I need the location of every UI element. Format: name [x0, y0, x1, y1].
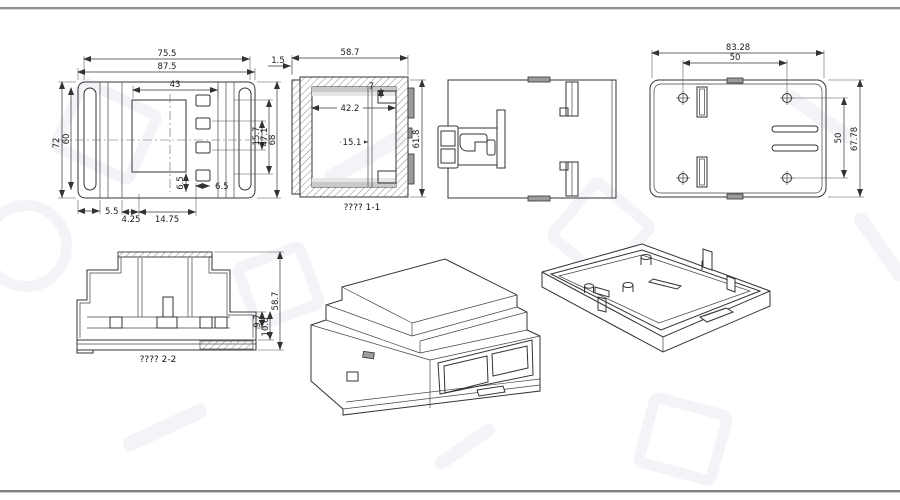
section2-foot: [77, 350, 93, 353]
dim-front-right-outer: 68: [268, 135, 278, 146]
dim-front-slot-a: 6.5: [176, 176, 186, 190]
dim-section2-b: 10.6: [261, 318, 271, 337]
dim-plate-hole-span-y: 50: [834, 133, 844, 144]
side-view: [438, 77, 616, 201]
dim-front-width-inner: 43: [170, 80, 181, 90]
plate-vertical-slots: [697, 87, 707, 187]
dim-front-bottom-left: 5.5: [105, 207, 119, 217]
section-1-1-view: 58.7 1.5 42.2 15.1 7 61.8 ???? 1-1: [268, 48, 426, 213]
front-display-window: [132, 100, 186, 172]
plate-top-notch: [727, 78, 743, 83]
dim-plate-hole-span-x: 50: [730, 53, 741, 63]
dim-section1-top: 58.7: [341, 48, 360, 58]
dim-front-width-top: 75.5: [158, 49, 177, 59]
section2-bosses: [110, 297, 227, 328]
drawing-canvas: 75.5 87.5 43 72 60 15.7 47.1 68 5.5: [0, 0, 900, 500]
dim-section1-inner: 42.2: [341, 104, 360, 114]
iso-module-view: [311, 259, 540, 415]
dim-front-width-outer: 87.5: [158, 62, 177, 72]
dim-section1-pocket: 15.1: [343, 138, 362, 148]
module-left-vent: [363, 351, 375, 358]
side-bottom-slot: [560, 162, 578, 196]
front-left-mount-slot: [84, 88, 96, 190]
section2-top-cap: [118, 252, 212, 257]
plate-horizontal-slots: [772, 126, 818, 151]
side-bottom-tab: [528, 196, 550, 201]
side-body-outline: [448, 80, 616, 198]
dim-section1-lip: 1.5: [271, 56, 285, 66]
section2-pins: [138, 258, 192, 317]
dim-front-height-inner: 60: [62, 134, 72, 145]
tray-silhouette: [542, 244, 770, 352]
dim-front-slot-b: 6.5: [215, 182, 229, 192]
dim-section1-tab: 7: [369, 82, 374, 92]
dim-plate-width: 83.28: [726, 43, 750, 53]
dim-front-bottom-a: 4.25: [122, 215, 141, 225]
front-right-mount-slot: [239, 88, 251, 190]
drawing-sheet: { "drawing": { "front": { "w_top": "75.5…: [0, 0, 900, 500]
iso-tray-view: [542, 244, 770, 352]
side-top-tab: [528, 77, 550, 82]
plate-screw-holes: [676, 91, 794, 185]
dim-front-bottom-b: 14.75: [155, 215, 179, 225]
dim-front-height-outer: 72: [52, 138, 62, 149]
dim-section1-height: 61.8: [412, 130, 422, 149]
dim-plate-height: 67.78: [850, 127, 860, 151]
section1-caption: ???? 1-1: [344, 203, 381, 213]
side-top-slot: [560, 82, 578, 116]
section-2-2-view: 9.7 10.6 58.7 ???? 2-2: [77, 252, 284, 365]
section2-base-hatch: [200, 341, 253, 349]
back-plate-view: 83.28 50 50 67.78: [650, 43, 864, 199]
section2-caption: ???? 2-2: [140, 355, 177, 365]
din-clip-plate: [497, 110, 505, 168]
front-view: 75.5 87.5 43 72 60 15.7 47.1 68 5.5: [52, 49, 281, 225]
plate-outline: [650, 80, 826, 197]
section2-dimensions: 9.7 10.6 58.7: [214, 252, 284, 350]
section1-left-flange: [292, 80, 300, 194]
dim-section2-height: 58.7: [271, 292, 281, 311]
plate-bottom-notch: [727, 194, 743, 199]
front-dimensions: 75.5 87.5 43 72 60 15.7 47.1 68 5.5: [52, 49, 281, 225]
front-terminal-windows: [196, 95, 210, 181]
module-silhouette: [311, 259, 540, 415]
